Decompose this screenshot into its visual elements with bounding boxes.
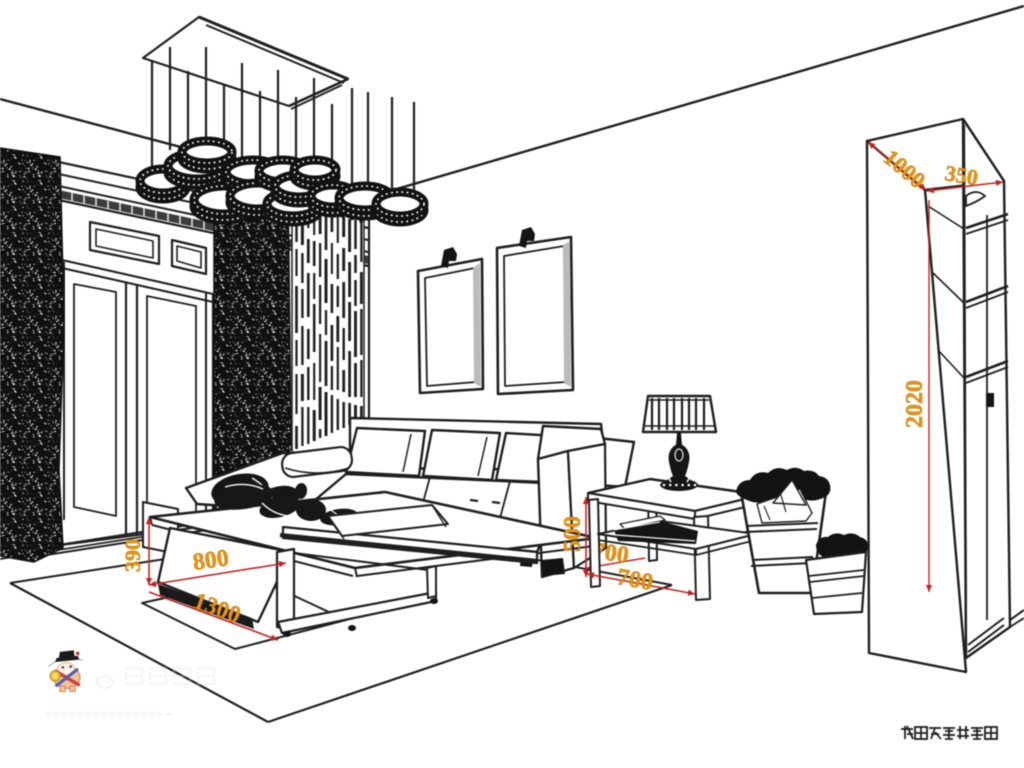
svg-text:350: 350	[943, 160, 980, 190]
svg-text:390: 390	[120, 539, 145, 572]
svg-text:500: 500	[560, 516, 586, 552]
svg-text:2020: 2020	[902, 380, 928, 428]
svg-text:800: 800	[191, 545, 230, 576]
